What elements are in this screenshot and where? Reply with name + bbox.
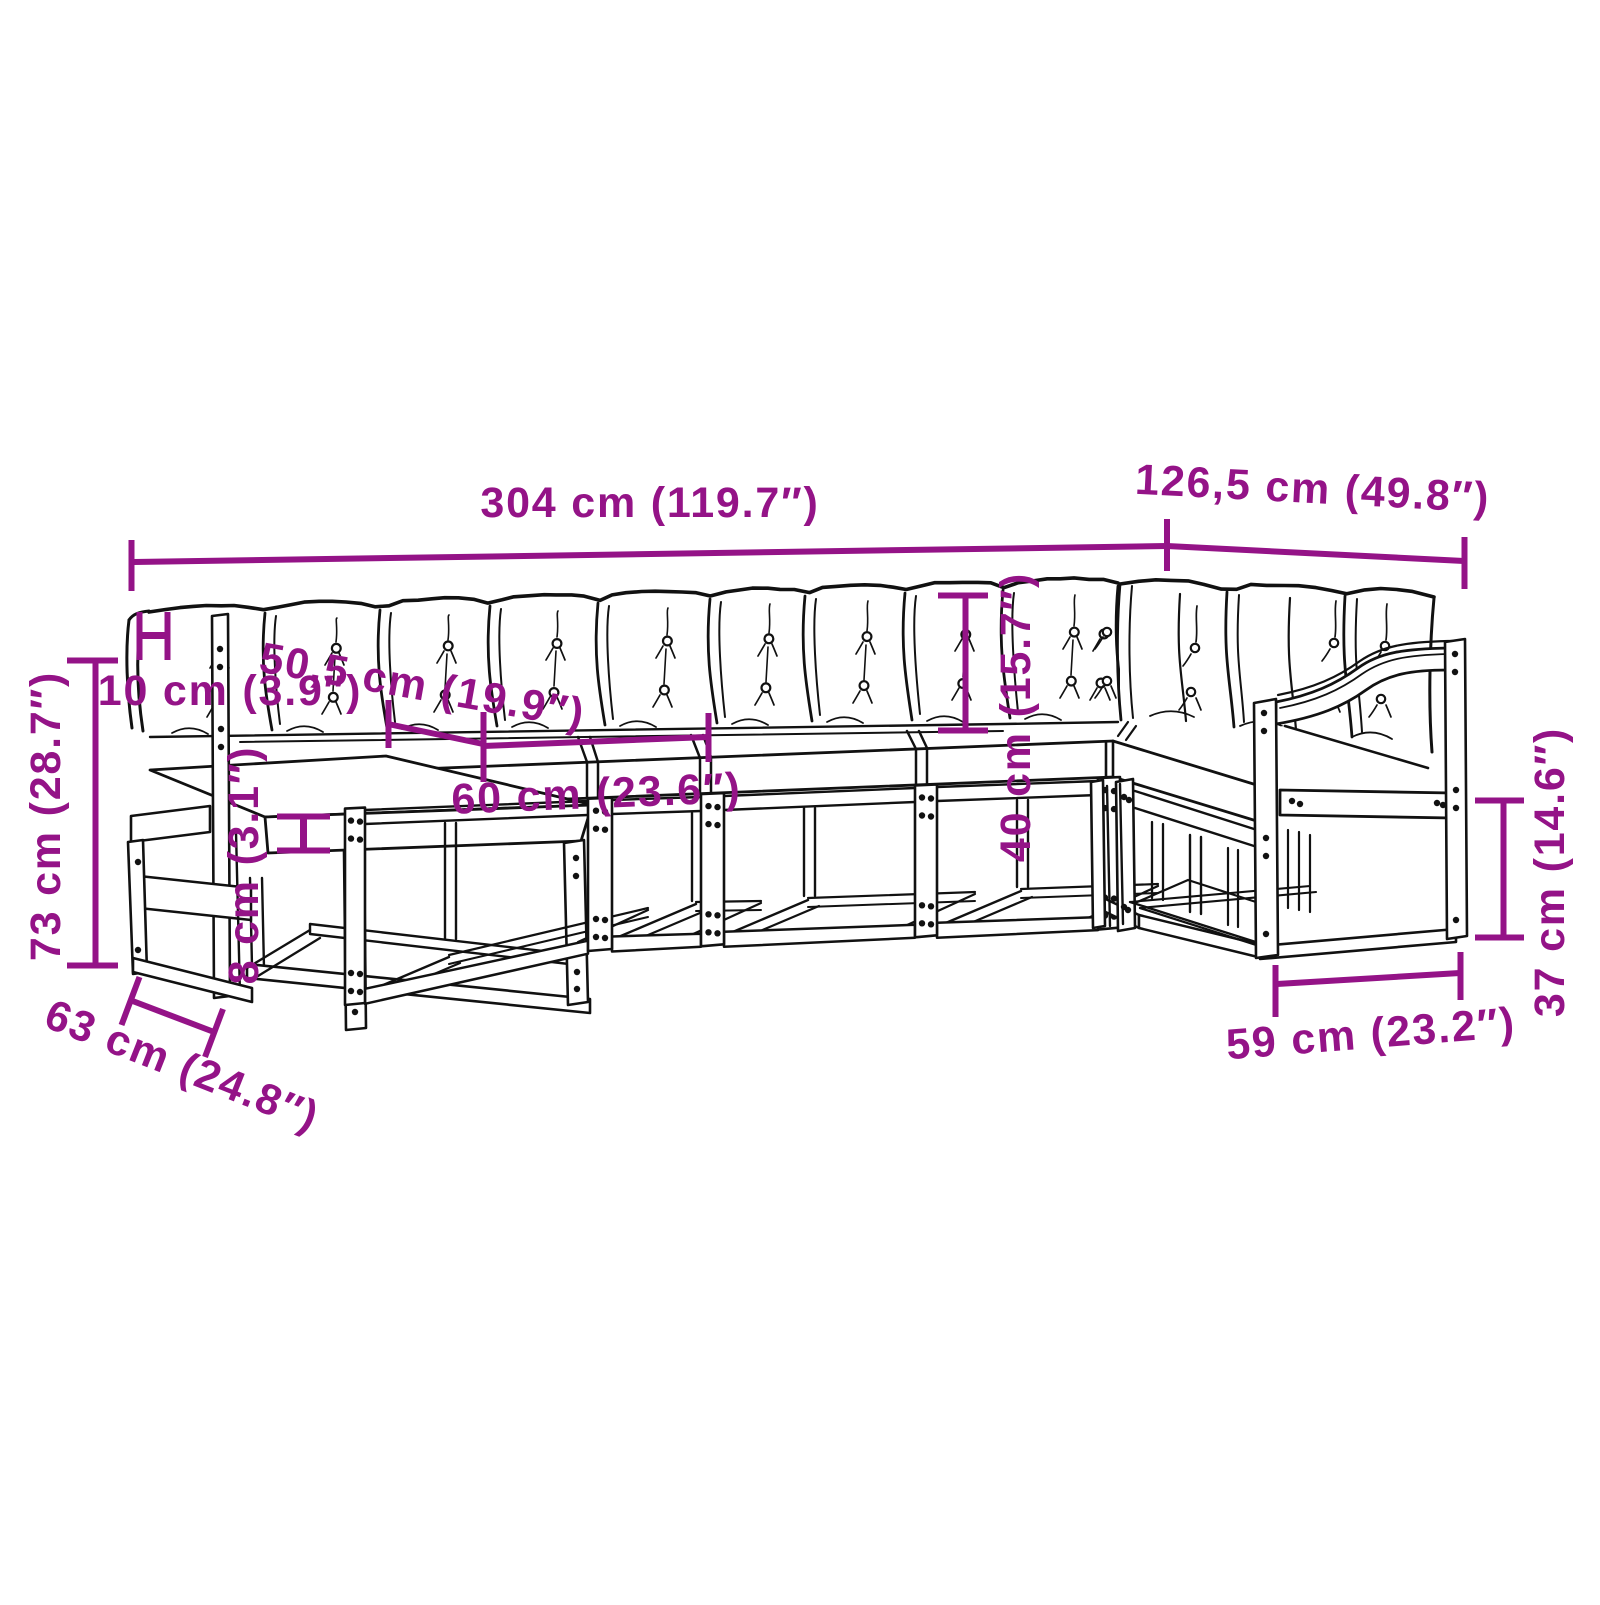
- svg-text:40 cm (15.7″): 40 cm (15.7″): [992, 572, 1040, 862]
- svg-text:73 cm (28.7″): 73 cm (28.7″): [22, 671, 70, 961]
- svg-text:37 cm (14.6″): 37 cm (14.6″): [1526, 727, 1574, 1017]
- svg-text:8 cm (3.1″): 8 cm (3.1″): [220, 746, 268, 985]
- svg-text:304 cm (119.7″): 304 cm (119.7″): [480, 479, 819, 527]
